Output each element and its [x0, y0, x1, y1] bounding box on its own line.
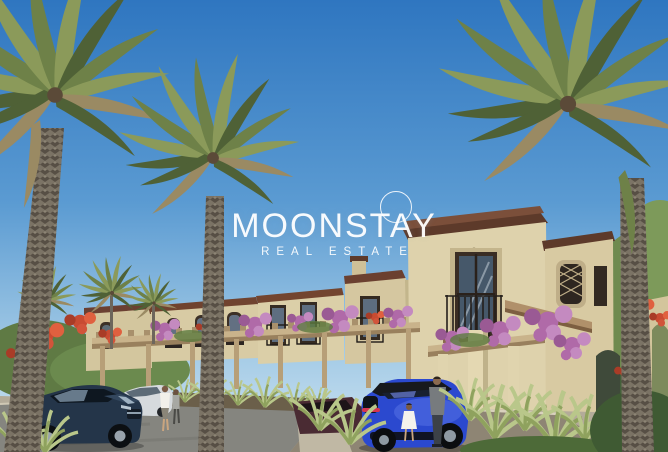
- property-listing-photo: MOONSTAY REAL ESTATE: [0, 0, 668, 452]
- rendered-scene: [0, 0, 668, 452]
- blue-suv: [359, 379, 471, 452]
